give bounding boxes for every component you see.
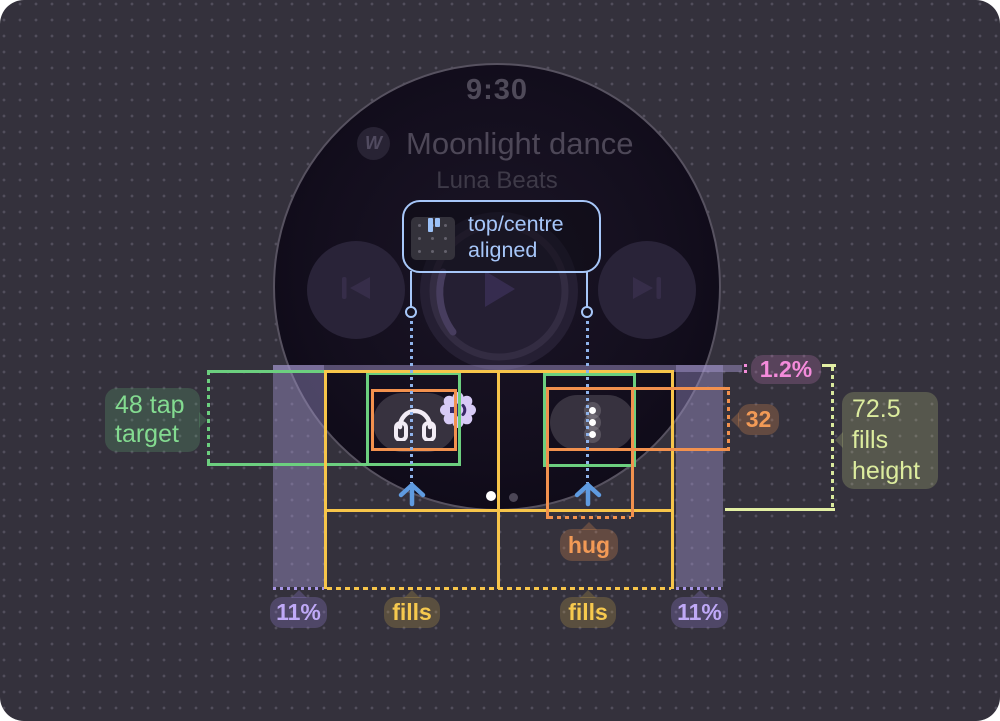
margin-badge-left: 11% (270, 597, 327, 628)
centre-axis-dotted-left (410, 321, 413, 483)
fills-badge-right: fills (560, 597, 616, 628)
column-guide-center (497, 370, 500, 589)
left-margin-band (273, 365, 324, 587)
gap-tick-dotted (744, 364, 747, 374)
alignment-callout: top/centre aligned (402, 200, 601, 273)
tap-target-guide-left-dotted (207, 371, 210, 464)
callout-connector-left (410, 271, 412, 307)
up-arrow-icon-right (574, 482, 602, 512)
button-rect-right-bottom (546, 448, 730, 451)
skip-next-icon (630, 275, 664, 306)
fills-height-badge: 72.5 fills height (842, 392, 938, 489)
button-height-badge: 32 (738, 404, 779, 435)
column-guide-bottom-dotted (327, 587, 671, 590)
button-rect-right-top (546, 387, 730, 390)
button-rect-right-rightedge (631, 387, 634, 517)
align-top-centre-icon (411, 217, 455, 260)
page-dot-active (486, 491, 496, 501)
centre-axis-dotted-right (586, 321, 589, 483)
button-rect-right-leftedge (546, 387, 549, 519)
button-rect-left (371, 389, 457, 451)
callout-connector-right (586, 271, 588, 307)
right-margin-band (676, 365, 723, 587)
watch-time: 9:30 (275, 74, 719, 107)
skip-next-button[interactable] (598, 241, 696, 339)
height-32-dotted-line (727, 391, 730, 448)
media-app-logo-icon: W (357, 127, 390, 160)
up-arrow-icon-left (398, 482, 426, 512)
fills-height-cap-bottom (725, 508, 835, 511)
page-dot-inactive (509, 493, 518, 502)
margin-badge-right: 11% (671, 597, 728, 628)
column-guide-left (324, 370, 327, 589)
alignment-callout-text: top/centre aligned (468, 211, 564, 263)
track-title: Moonlight dance (406, 126, 634, 162)
skip-previous-icon (339, 275, 373, 306)
fills-badge-left: fills (384, 597, 440, 628)
design-spec-canvas: 9:30 W Moonlight dance Luna Beats (0, 0, 1000, 721)
skip-previous-button[interactable] (307, 241, 405, 339)
tap-target-badge: 48 tap target (105, 388, 200, 452)
fills-height-dotted-line (831, 367, 834, 509)
column-guide-right (671, 370, 674, 589)
connector-anchor-left (405, 306, 417, 318)
hug-dotted-line (549, 516, 631, 519)
hug-badge: hug (560, 529, 618, 561)
connector-anchor-right (581, 306, 593, 318)
gap-percent-badge: 1.2% (751, 355, 821, 384)
artist-name: Luna Beats (275, 167, 719, 195)
